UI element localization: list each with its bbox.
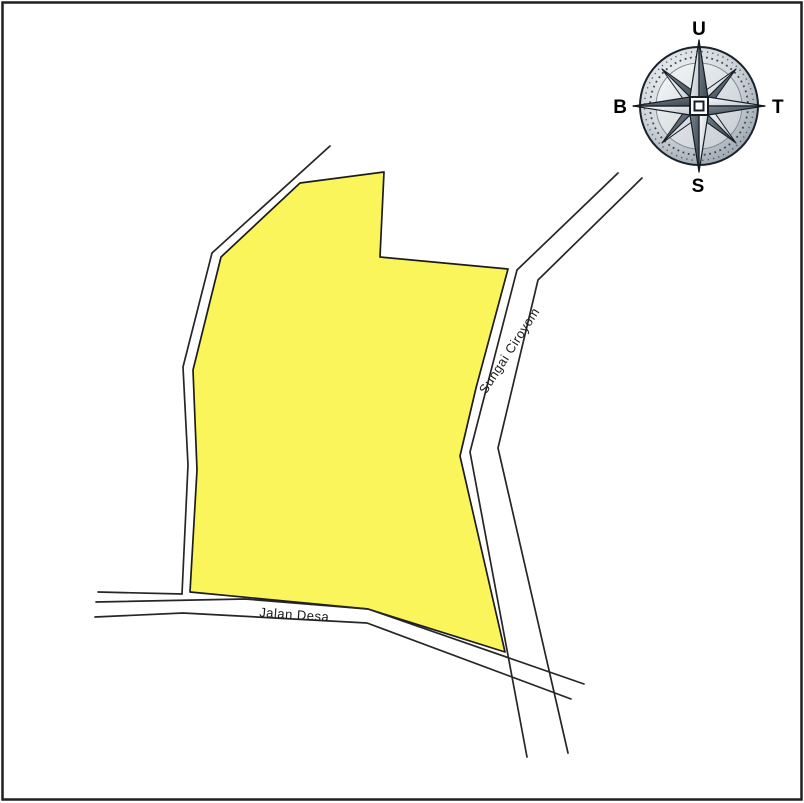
river-right-bank [498, 178, 642, 753]
boundary-spur-line [98, 592, 182, 594]
road: Jalan Desa [95, 599, 584, 699]
compass-rose: U T S B [613, 19, 784, 197]
compass-center-inner-square [695, 102, 704, 111]
compass-label-south: S [692, 176, 705, 197]
road-label: Jalan Desa [259, 605, 330, 625]
map-page: Sungai Ciroyom Jalan Desa [0, 0, 804, 803]
site-plan-map: Sungai Ciroyom Jalan Desa [0, 0, 804, 803]
compass-label-west: B [613, 97, 627, 118]
river: Sungai Ciroyom [470, 173, 642, 757]
compass-label-east: T [772, 97, 784, 118]
compass-label-north: U [692, 19, 706, 40]
land-parcel-polygon [190, 172, 508, 652]
